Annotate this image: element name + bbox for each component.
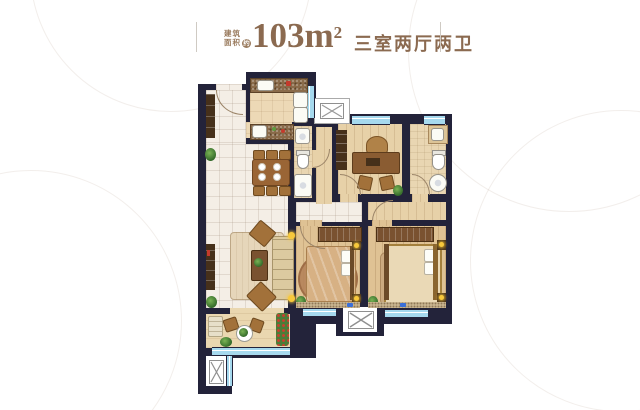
study-door-opening <box>340 194 358 202</box>
ac-left-symbol <box>209 360 224 384</box>
kitchen-prep-sink <box>252 125 267 138</box>
nightstand-lamp <box>439 242 444 247</box>
counter-item-green <box>272 127 276 131</box>
bath1-basin <box>294 174 312 197</box>
washing-machine <box>295 128 310 144</box>
floor-plan <box>0 0 640 410</box>
master-footboard <box>384 244 389 300</box>
master-wardrobe <box>376 227 434 242</box>
bookshelf <box>336 130 347 170</box>
bath2-door-opening <box>412 194 428 202</box>
plate <box>273 173 281 181</box>
floor-lamp-1 <box>288 232 295 239</box>
ac-left-window <box>226 356 233 386</box>
nightstand-lamp <box>354 296 359 301</box>
bath2-shower-basin <box>429 174 447 192</box>
lounge-chair <box>208 316 223 337</box>
bedroom1-headboard <box>350 246 354 300</box>
balcony-flowers <box>276 313 289 346</box>
slippers <box>400 303 406 307</box>
toilet1 <box>297 154 309 169</box>
nightstand-lamp <box>354 243 359 248</box>
bath2-sink <box>431 128 444 141</box>
plate <box>258 163 266 171</box>
master-headboard <box>433 244 438 300</box>
dining-chair <box>279 186 291 196</box>
bath2-window <box>424 115 445 125</box>
balcony-table-plant <box>239 328 248 337</box>
floorplan-page: 建筑 面积约 103m2 三室两厅两卫 <box>0 0 640 410</box>
coffee-table-plant <box>254 258 263 267</box>
plate <box>258 173 266 181</box>
kitchen-appliance <box>293 107 308 123</box>
slippers <box>347 303 353 307</box>
balcony-plant <box>220 337 232 347</box>
stove-item <box>286 81 291 86</box>
floor-lamp-2 <box>288 295 295 302</box>
living-plant <box>206 296 217 308</box>
sofa <box>272 236 294 300</box>
elevator-symbol <box>320 103 344 119</box>
ac-right-symbol <box>348 311 374 329</box>
shoe-cabinet <box>206 94 215 138</box>
bedroom1-window <box>303 308 336 317</box>
plate <box>273 163 281 171</box>
dining-chair <box>253 186 265 196</box>
nightstand-lamp <box>439 295 444 300</box>
study-window <box>352 115 390 125</box>
entry-plant <box>205 148 216 161</box>
hall-tile-strip <box>296 202 362 222</box>
fridge <box>293 92 308 108</box>
desk-laptop <box>366 158 380 166</box>
master-window <box>385 309 428 318</box>
study-plant <box>393 185 403 196</box>
counter-item-red <box>281 129 285 133</box>
balcony-window <box>212 347 290 356</box>
kitchen-sink <box>257 80 274 91</box>
tv-decor-red <box>207 250 210 256</box>
dining-table <box>252 159 290 186</box>
dining-chair <box>266 186 278 196</box>
toilet2 <box>432 154 445 170</box>
master-window-mat <box>368 302 446 308</box>
